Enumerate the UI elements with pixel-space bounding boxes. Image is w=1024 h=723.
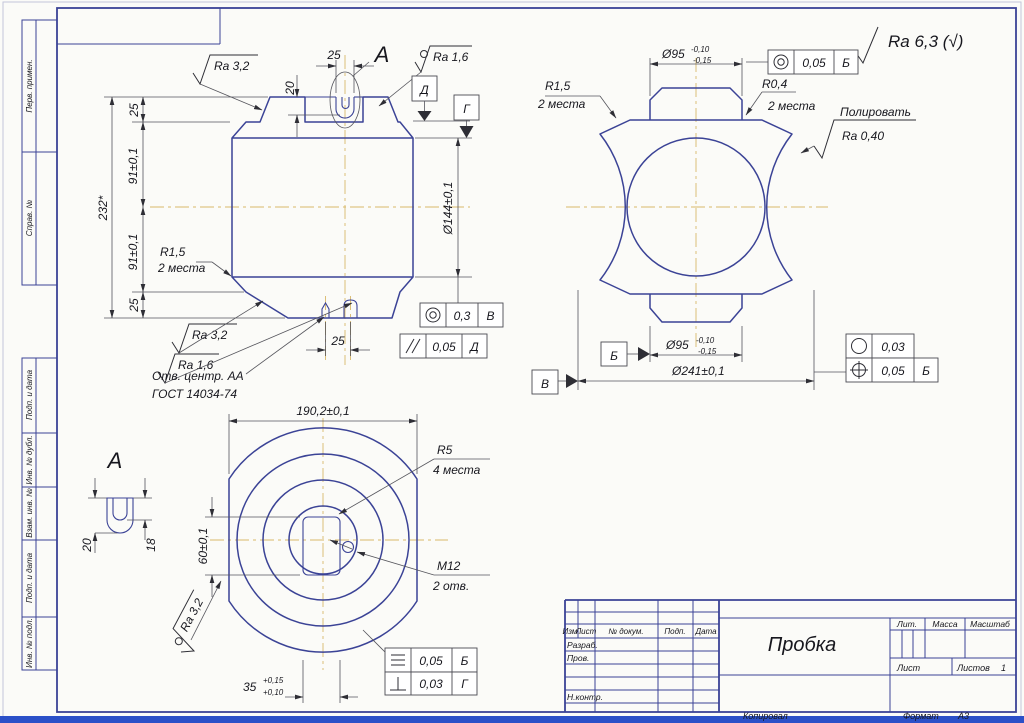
row-developer: Разраб. [567, 640, 598, 650]
margin-label-inv-podl: Инв. № подл. [25, 618, 34, 668]
margin-label-podp-data-1: Подп. и дата [25, 369, 34, 420]
svg-text:25: 25 [330, 334, 345, 348]
svg-text:35: 35 [243, 680, 257, 694]
svg-text:60±0,1: 60±0,1 [196, 528, 210, 565]
svg-text:0,05: 0,05 [432, 340, 456, 354]
svg-text:+0,15: +0,15 [263, 676, 284, 685]
svg-text:ГОСТ 14034-74: ГОСТ 14034-74 [152, 387, 237, 401]
dim-chain-left: 25 91±0,1 91±0,1 25 [126, 97, 143, 318]
sheets-label: Листов [956, 663, 990, 673]
row-ncontrol: Н.контр. [567, 692, 603, 702]
side-view: Ø95 -0,10 -0,15 0,05 Б R1,5 2 места R0,4… [532, 45, 938, 394]
svg-text:Д: Д [468, 340, 479, 354]
svg-text:20: 20 [80, 538, 94, 553]
svg-text:Ra 3,2: Ra 3,2 [214, 59, 250, 73]
general-roughness-text: Ra 6,3 (√) [888, 32, 963, 51]
dim-boss-bottom-95: Ø95 -0,10 -0,15 [650, 326, 742, 362]
polish-note: Полировать Ra 0,40 [801, 105, 916, 158]
svg-text:-0,15: -0,15 [698, 347, 717, 356]
m12-note: М12 2 отв. [330, 540, 490, 593]
margin-label-perv-primen: Перв. примен. [25, 59, 34, 112]
copied-label: Копировал [743, 711, 788, 721]
fcf-concentricity: 0,05 Б [746, 50, 858, 74]
svg-text:Б: Б [842, 56, 850, 70]
mass-label: Масса [932, 619, 957, 629]
detail-a-callout-label: А [373, 42, 390, 67]
svg-text:2 места: 2 места [767, 99, 816, 113]
svg-text:Ø95: Ø95 [665, 338, 689, 352]
svg-text:Д: Д [418, 83, 429, 97]
section-top-band [232, 97, 413, 138]
dim-slot-width-bottom: 25 [306, 322, 370, 356]
svg-text:Отв. центр. АА: Отв. центр. АА [152, 369, 244, 383]
datum-flag-v: В [532, 370, 578, 394]
svg-text:20: 20 [283, 81, 297, 96]
fcf-perpendicularity: 0,03 Г [385, 672, 477, 695]
svg-text:25: 25 [326, 48, 341, 62]
datum-triangle [418, 111, 432, 121]
svg-text:18: 18 [144, 538, 158, 552]
sheet-label: Лист [896, 663, 921, 673]
svg-text:Полировать: Полировать [840, 105, 911, 119]
datum-triangle [638, 347, 650, 361]
margin-column: Перв. примен. Справ. № Подп. и дата Инв.… [22, 20, 57, 670]
radius-note-r04: R0,4 2 места [746, 77, 816, 115]
dim-bore-144: Ø144±0,1 [415, 138, 472, 303]
svg-text:0,05: 0,05 [802, 56, 826, 70]
svg-text:Ø144±0,1: Ø144±0,1 [441, 182, 455, 236]
radius-note-r5: R5 4 места [339, 443, 490, 514]
svg-text:R5: R5 [437, 443, 453, 457]
col-list: Лист [575, 627, 597, 636]
margin-label-vzam-inv: Взам. инв. № [25, 488, 34, 538]
sheets-value: 1 [1001, 663, 1006, 673]
detail-a-title: А [106, 448, 123, 473]
datum-triangle [460, 126, 474, 138]
svg-text:+0,10: +0,10 [263, 688, 284, 697]
svg-text:В: В [541, 377, 549, 391]
drawing-sheet: Перв. примен. Справ. № Подп. и дата Инв.… [0, 0, 1024, 723]
col-ndokum: № докум. [608, 627, 643, 636]
roughness-note: Ra 3,2 [165, 581, 221, 657]
part-name: Пробка [768, 634, 837, 656]
margin-label-inv-dubl: Инв. № дубл. [25, 435, 34, 484]
svg-text:2 места: 2 места [537, 97, 586, 111]
roughness-note-top-left: Ra 3,2 [193, 55, 262, 110]
dim-25-bottom: 25 [127, 298, 141, 313]
datum-flag-b: Б [601, 342, 650, 366]
top-view: 190,2±0,1 R5 4 места М12 2 отв. 60±0,1 R… [165, 404, 490, 703]
lit-label: Лит. [896, 619, 917, 629]
svg-text:Ø241±0,1: Ø241±0,1 [671, 364, 725, 378]
radius-note-r15: R1,5 2 места [537, 79, 616, 118]
svg-text:2 места: 2 места [157, 261, 206, 275]
svg-text:0,03: 0,03 [419, 677, 443, 691]
dim-outer-depth: 20 [80, 478, 117, 553]
radius-note-r15: R1,5 2 места [157, 245, 231, 276]
svg-text:R1,5: R1,5 [160, 245, 186, 259]
dim-inner-depth: 18 [127, 478, 158, 552]
title-block: Изм. Лист № докум. Подп. Дата Разраб. Пр… [562, 600, 1016, 712]
scale-label: Масштаб [970, 619, 1011, 629]
format-label: Формат [903, 711, 939, 721]
drawing-canvas: Перв. примен. Справ. № Подп. и дата Инв.… [0, 0, 1024, 723]
svg-text:В: В [486, 309, 494, 323]
svg-text:0,05: 0,05 [419, 654, 443, 668]
front-view: А 25 20 Ra 3,2 Ra 1,6 Д Г [96, 42, 503, 401]
svg-text:Ra 0,40: Ra 0,40 [842, 129, 884, 143]
svg-text:0,3: 0,3 [454, 309, 471, 323]
svg-text:Ø95: Ø95 [661, 47, 685, 61]
svg-text:2 отв.: 2 отв. [432, 579, 469, 593]
datum-triangle [566, 374, 578, 388]
svg-text:R1,5: R1,5 [545, 79, 571, 93]
fcf-concentricity: 0,3 В [420, 303, 503, 327]
svg-text:-0,10: -0,10 [691, 45, 710, 54]
slot-section [107, 498, 133, 533]
general-roughness-note: Ra 6,3 (√) [854, 27, 963, 63]
svg-text:Ra 3,2: Ra 3,2 [177, 596, 206, 634]
detail-a-view: А 20 18 [80, 100, 345, 553]
fcf-roundness: 0,03 [846, 334, 914, 358]
dim-slot-width: 35 +0,15 +0,10 [243, 660, 358, 703]
fcf-parallelism: 0,05 Д [400, 334, 487, 358]
svg-text:Ra 3,2: Ra 3,2 [192, 328, 228, 342]
dim-91-upper: 91±0,1 [126, 148, 140, 185]
svg-text:R0,4: R0,4 [762, 77, 788, 91]
datum-flag-g: Г [454, 95, 479, 138]
bottom-bar [0, 716, 1024, 723]
svg-text:Б: Б [922, 364, 930, 378]
col-podp: Подп. [664, 627, 685, 636]
svg-text:Ra 1,6: Ra 1,6 [433, 50, 469, 64]
col-data: Дата [694, 627, 717, 636]
dim-slot-depth: 20 [283, 75, 340, 137]
svg-text:М12: М12 [437, 559, 461, 573]
roughness-note-bottom-outer: Ra 3,2 [172, 301, 263, 353]
svg-text:4 места: 4 места [433, 463, 481, 477]
svg-text:0,03: 0,03 [881, 340, 905, 354]
svg-text:-0,15: -0,15 [693, 56, 712, 65]
margin-label-podp-data-2: Подп. и дата [25, 552, 34, 603]
format-value: А3 [957, 711, 969, 721]
fcf-position: 0,05 Б [814, 358, 938, 382]
center-slot [303, 517, 340, 575]
dim-25-top: 25 [127, 103, 141, 118]
margin-label-sprav-no: Справ. № [25, 199, 34, 236]
dim-overall-232: 232* [96, 97, 112, 318]
svg-text:0,05: 0,05 [881, 364, 905, 378]
svg-text:190,2±0,1: 190,2±0,1 [296, 404, 349, 418]
svg-text:Б: Б [461, 654, 469, 668]
svg-text:-0,10: -0,10 [696, 336, 715, 345]
svg-text:232*: 232* [96, 195, 110, 221]
dim-91-lower: 91±0,1 [126, 234, 140, 271]
row-checker: Пров. [567, 653, 589, 663]
svg-text:Б: Б [610, 349, 618, 363]
